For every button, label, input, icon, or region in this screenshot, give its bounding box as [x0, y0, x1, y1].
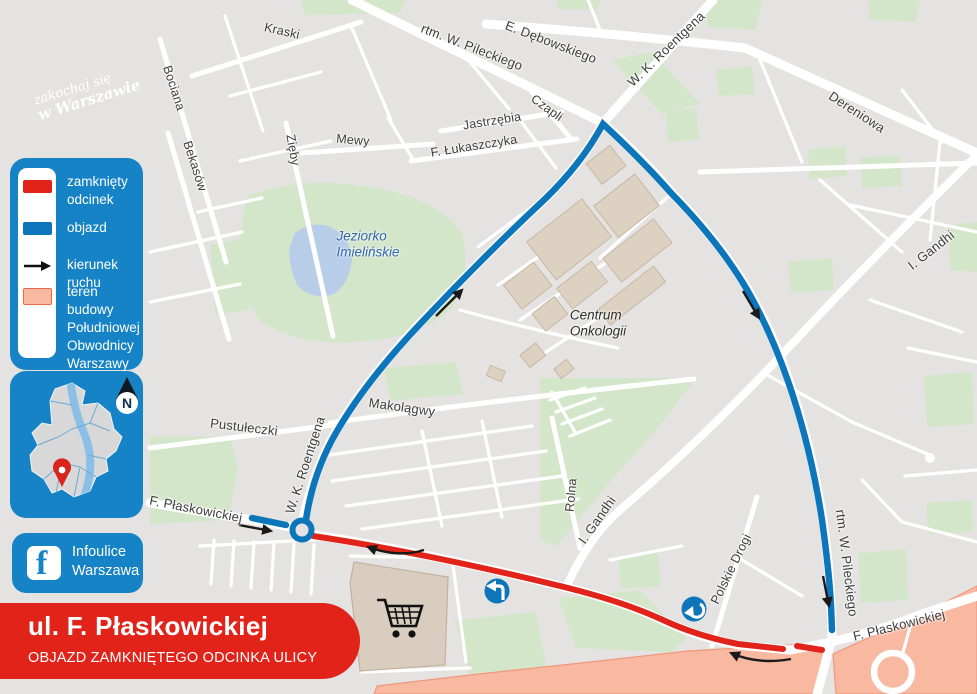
legend-label: objazd — [67, 219, 139, 237]
banner-title: ul. F. Płaskowickiej — [28, 611, 268, 642]
u-turn-sign — [682, 597, 707, 622]
legend-label: teren budowy Południowej Obwodnicy Warsz… — [67, 283, 139, 373]
direction-arrow-icon — [23, 258, 52, 274]
warsaw-minimap: N — [10, 371, 143, 518]
compass-north-icon: N — [116, 377, 138, 414]
svg-text:N: N — [122, 395, 132, 411]
legend-label: zamknięty odcinek — [67, 173, 139, 209]
facebook-icon: f — [27, 546, 61, 580]
shopping-mall-building — [350, 562, 448, 671]
banner-subtitle: OBJAZD ZAMKNIĘTEGO ODCINKA ULICY — [28, 650, 317, 666]
detour-swatch — [23, 222, 52, 235]
roundabout — [293, 521, 312, 540]
facebook-label: Infoulice Warszawa — [72, 543, 139, 581]
construction-swatch — [23, 288, 52, 305]
turn-left-sign — [485, 579, 510, 604]
street-map — [0, 0, 977, 694]
legend: zamknięty odcinek objazd kierunek ruchu … — [10, 158, 143, 370]
warsaw-outline — [30, 379, 122, 501]
map-canvas: KraskiBocianaBekasówZiębyMewyrtm. W. Pil… — [0, 0, 977, 694]
closed-section-swatch — [23, 180, 52, 193]
facebook-badge[interactable]: f Infoulice Warszawa — [12, 533, 143, 593]
closure-banner: ul. F. Płaskowickiej OBJAZD ZAMKNIĘTEGO … — [0, 603, 360, 679]
